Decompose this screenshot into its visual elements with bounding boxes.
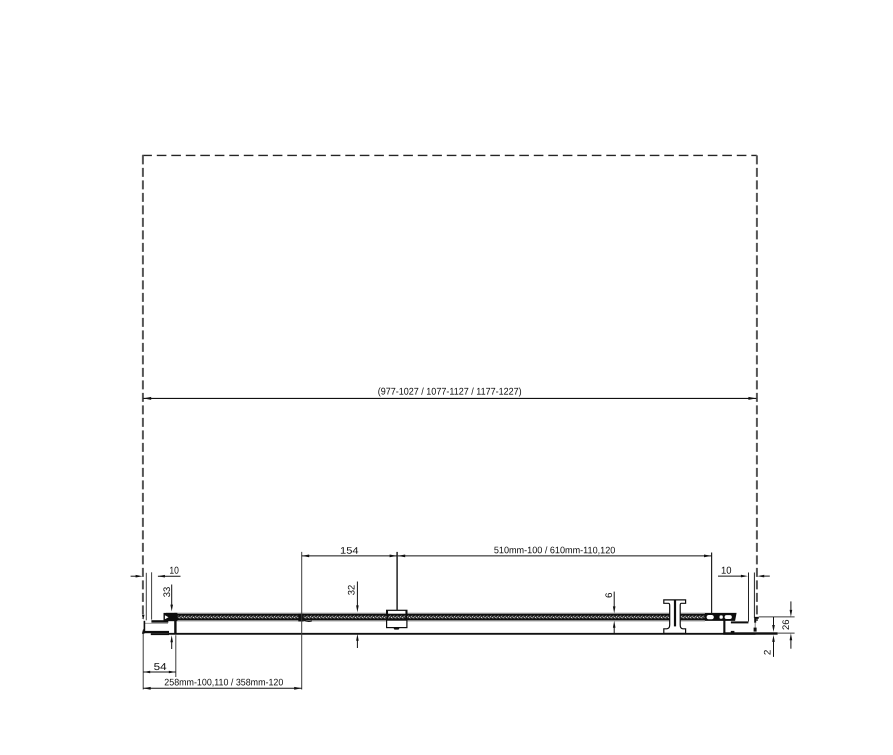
svg-text:26: 26 bbox=[781, 619, 792, 630]
svg-text:54: 54 bbox=[154, 662, 168, 673]
svg-text:2: 2 bbox=[763, 650, 774, 656]
svg-text:6: 6 bbox=[604, 593, 615, 599]
svg-text:10: 10 bbox=[721, 566, 732, 577]
svg-text:10: 10 bbox=[169, 566, 179, 577]
svg-text:154: 154 bbox=[340, 546, 359, 557]
svg-text:33: 33 bbox=[162, 587, 173, 598]
svg-text:258mm-100,110 / 358mm-120: 258mm-100,110 / 358mm-120 bbox=[164, 677, 283, 688]
svg-text:(977-1027 / 1077-1127 / 1177-1: (977-1027 / 1077-1127 / 1177-1227) bbox=[378, 387, 522, 398]
svg-text:510mm-100 / 610mm-110,120: 510mm-100 / 610mm-110,120 bbox=[494, 545, 616, 556]
svg-text:32: 32 bbox=[347, 585, 358, 596]
